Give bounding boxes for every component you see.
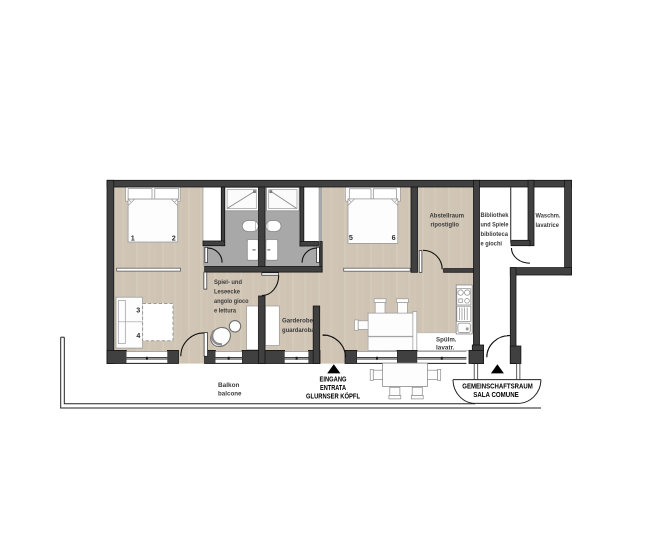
svg-text:lavatr.: lavatr. — [436, 345, 455, 352]
svg-text:und Spiele: und Spiele — [481, 222, 509, 229]
svg-text:Spülm.: Spülm. — [436, 336, 457, 343]
svg-text:Abstellraum: Abstellraum — [430, 212, 465, 219]
svg-text:GLURNSER KÖPFL: GLURNSER KÖPFL — [306, 392, 361, 401]
svg-text:1: 1 — [131, 234, 135, 243]
svg-text:EINGANG: EINGANG — [320, 377, 347, 384]
svg-text:Spiel- und: Spiel- und — [214, 279, 242, 286]
svg-text:e lettura: e lettura — [214, 308, 236, 315]
svg-text:ENTRATA: ENTRATA — [320, 385, 346, 392]
svg-text:SALA COMUNE: SALA COMUNE — [473, 392, 519, 399]
svg-text:2: 2 — [172, 234, 176, 243]
svg-text:6: 6 — [392, 233, 396, 242]
svg-text:e giochi: e giochi — [481, 241, 503, 248]
svg-text:Bibliothek: Bibliothek — [481, 212, 509, 219]
svg-text:lavatrice: lavatrice — [536, 222, 560, 229]
svg-text:balcone: balcone — [218, 390, 242, 397]
svg-text:GEMEINSCHAFTSRAUM: GEMEINSCHAFTSRAUM — [462, 383, 533, 390]
svg-text:angolo gioco: angolo gioco — [214, 298, 249, 305]
svg-text:Balkon: Balkon — [218, 382, 240, 389]
svg-text:Garderobe: Garderobe — [282, 318, 313, 325]
svg-text:ripostiglio: ripostiglio — [431, 221, 460, 228]
svg-text:guardaroba: guardaroba — [282, 327, 315, 334]
svg-text:5: 5 — [349, 233, 353, 242]
svg-text:Leseecke: Leseecke — [214, 289, 240, 296]
svg-text:4: 4 — [136, 331, 140, 340]
svg-text:3: 3 — [136, 306, 140, 315]
svg-text:Waschm.: Waschm. — [536, 213, 561, 220]
svg-text:biblioteca: biblioteca — [481, 231, 509, 238]
